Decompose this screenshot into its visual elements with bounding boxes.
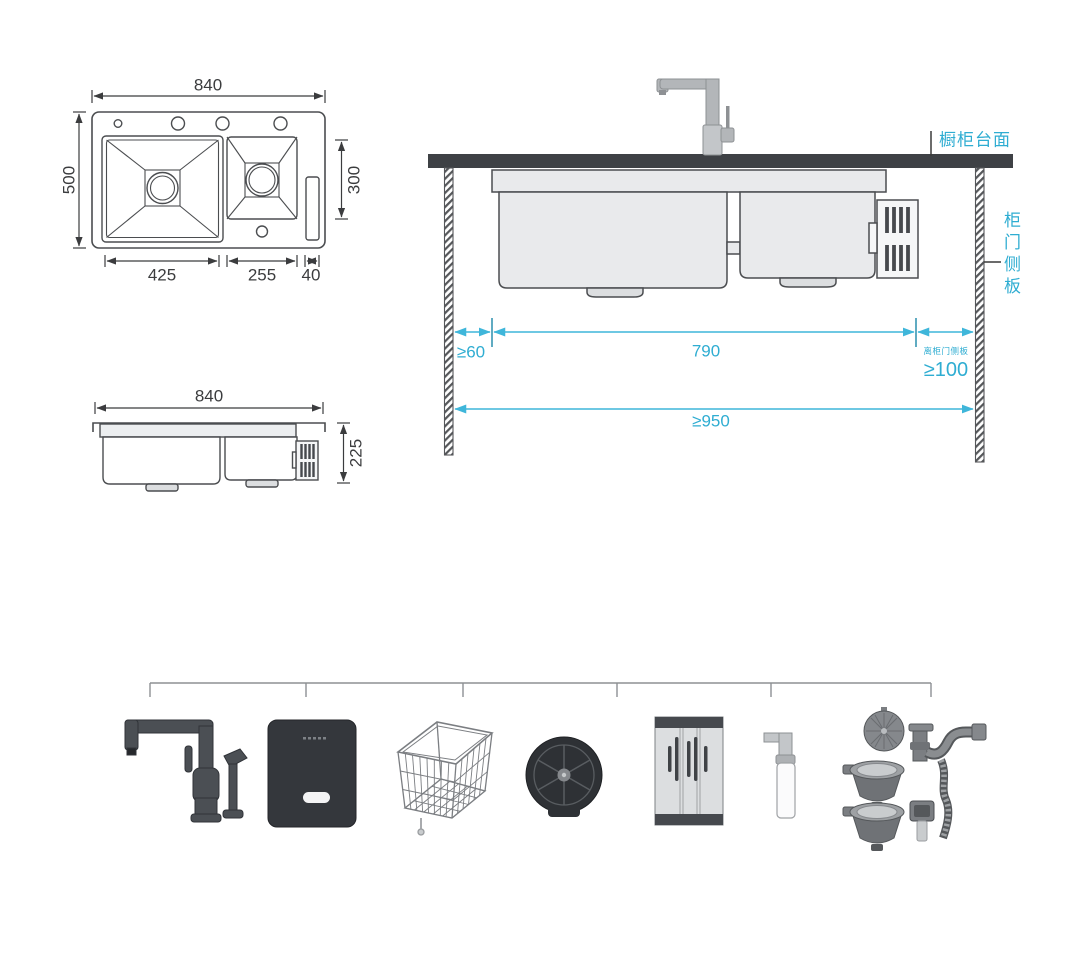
countertop [428, 154, 1013, 168]
section-right-clearance-dim: ≥100 [924, 360, 968, 380]
section-left-clearance-dim: ≥60 [457, 344, 485, 361]
side-height-dim: 225 [348, 439, 365, 467]
plan-left-bowl-width-dim: 425 [148, 267, 176, 284]
right-bowl [227, 137, 297, 237]
cup-rinser-icon [526, 737, 602, 817]
right-drain-stub [246, 480, 278, 487]
left-cabinet-wall [445, 168, 454, 455]
overflow-fitting [910, 801, 934, 841]
plan-depth-dim: 500 [61, 166, 78, 194]
drawing-canvas [0, 0, 1080, 968]
right-bowl-section [740, 192, 875, 278]
accessories-row [125, 707, 986, 851]
section-opening-width-dim: 790 [692, 343, 720, 360]
faucet-base [703, 125, 722, 155]
small-hole [257, 226, 268, 237]
side-view [93, 402, 350, 491]
sink-rim [492, 170, 886, 192]
rim-band [100, 424, 296, 437]
side-tray [306, 177, 319, 240]
vent-box-section [869, 200, 918, 278]
bowl-connector [727, 242, 740, 254]
vent-box-side [293, 441, 319, 480]
technical-drawing-page: 840 500 300 425 255 40 840 225 ≥60 790 离… [0, 0, 1080, 968]
panel-handle-slot [303, 792, 330, 803]
left-drain [147, 173, 178, 204]
plan-right-bowl-width-dim: 255 [248, 267, 276, 284]
cabinet-side-panel-label: 柜门侧板 [998, 211, 1023, 299]
drain-strainer-2 [843, 803, 904, 851]
right-cabinet-wall [976, 168, 985, 462]
faucet-hole-small [114, 120, 122, 128]
sink-outline [92, 112, 325, 248]
side-width-dim: 840 [195, 388, 223, 405]
left-bowl-profile [103, 437, 220, 484]
left-bowl-section [499, 192, 727, 288]
roll-up-drain-rack-icon [655, 717, 723, 825]
accessory-bracket [150, 683, 931, 697]
section-dimensions [455, 318, 973, 409]
installation-section-view [428, 79, 1013, 462]
right-drain [246, 164, 278, 196]
drain-strainer-1 [843, 761, 904, 809]
drain-pipe-assembly-icon [843, 707, 986, 851]
sink-section [492, 170, 918, 297]
countertop-label: 橱柜台面 [939, 132, 1011, 149]
faucet-hole-2 [216, 117, 229, 130]
stainless-drain-basket-icon [398, 722, 492, 835]
section-right-clearance-note: 离柜门侧板 [923, 347, 968, 356]
faucet-hole-1 [172, 117, 185, 130]
left-drain-stub [146, 484, 178, 491]
plan-view [73, 90, 348, 267]
plan-tray-width-dim: 40 [302, 267, 321, 284]
faucet-section [657, 79, 734, 155]
side-lever [721, 128, 734, 142]
right-bowl-profile [225, 437, 297, 480]
faucet-hole-3 [274, 117, 287, 130]
soap-dispenser-icon [764, 733, 795, 818]
section-total-width-dim: ≥950 [692, 413, 730, 430]
plan-width-dim: 840 [194, 77, 222, 94]
side-lever-rod [726, 106, 730, 130]
plan-right-bowl-depth-dim: 300 [346, 166, 363, 194]
pull-out-kitchen-faucet-icon [125, 720, 247, 822]
black-control-panel-icon [268, 720, 356, 827]
left-bowl [102, 136, 223, 242]
left-drain-flange [587, 288, 643, 297]
right-drain-flange [780, 278, 836, 287]
